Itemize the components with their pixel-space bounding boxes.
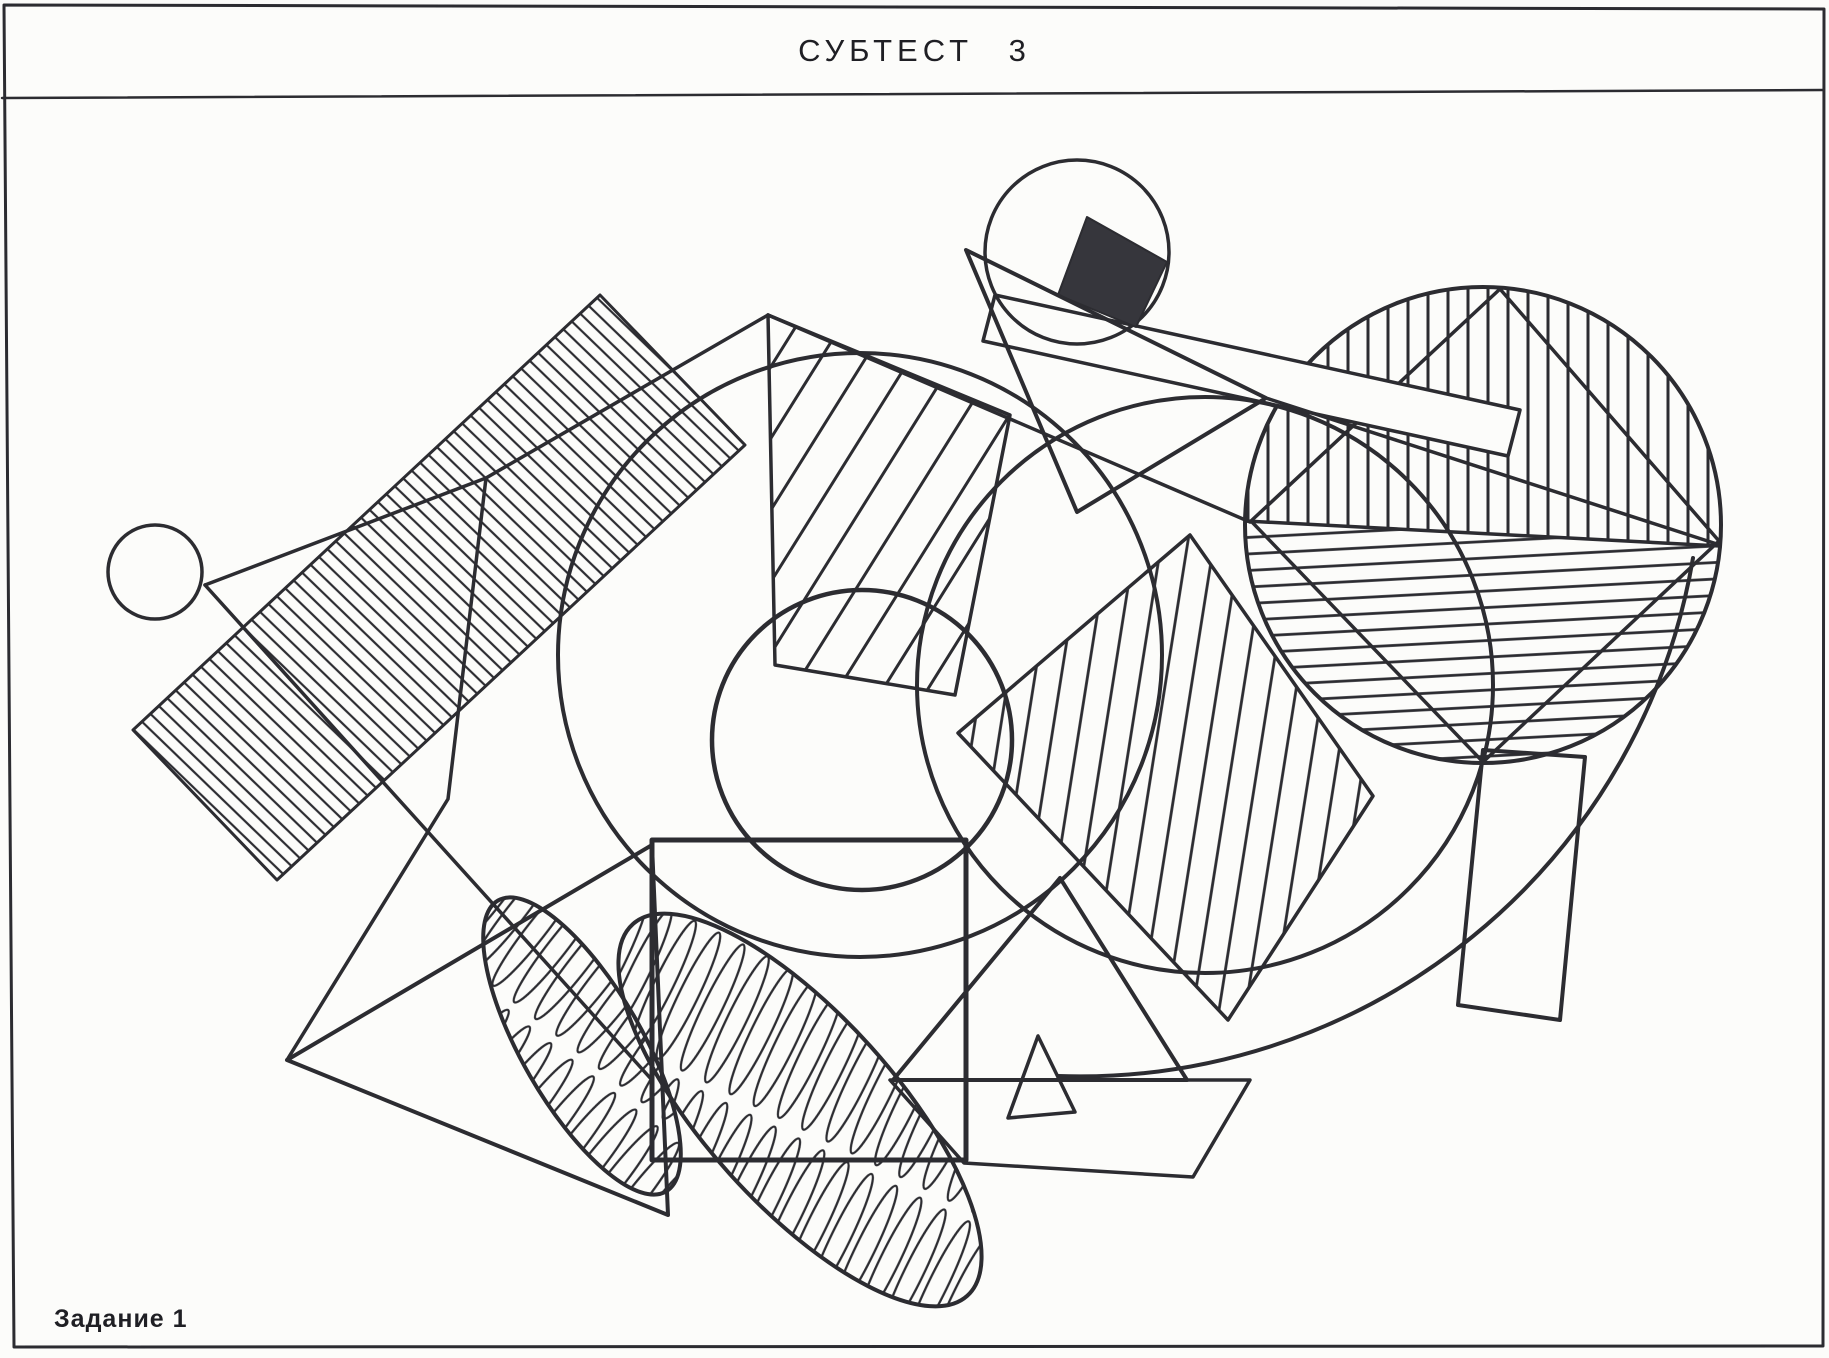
small-circle [108,525,202,619]
bottom-rectangle [1458,750,1585,1020]
title-divider [2,90,1823,98]
black-square [1058,217,1167,327]
task-label: Задание 1 [54,1305,188,1334]
figure-canvas [0,0,1829,1358]
test-page: СУБТЕСТ 3 Задание 1 [0,0,1829,1358]
